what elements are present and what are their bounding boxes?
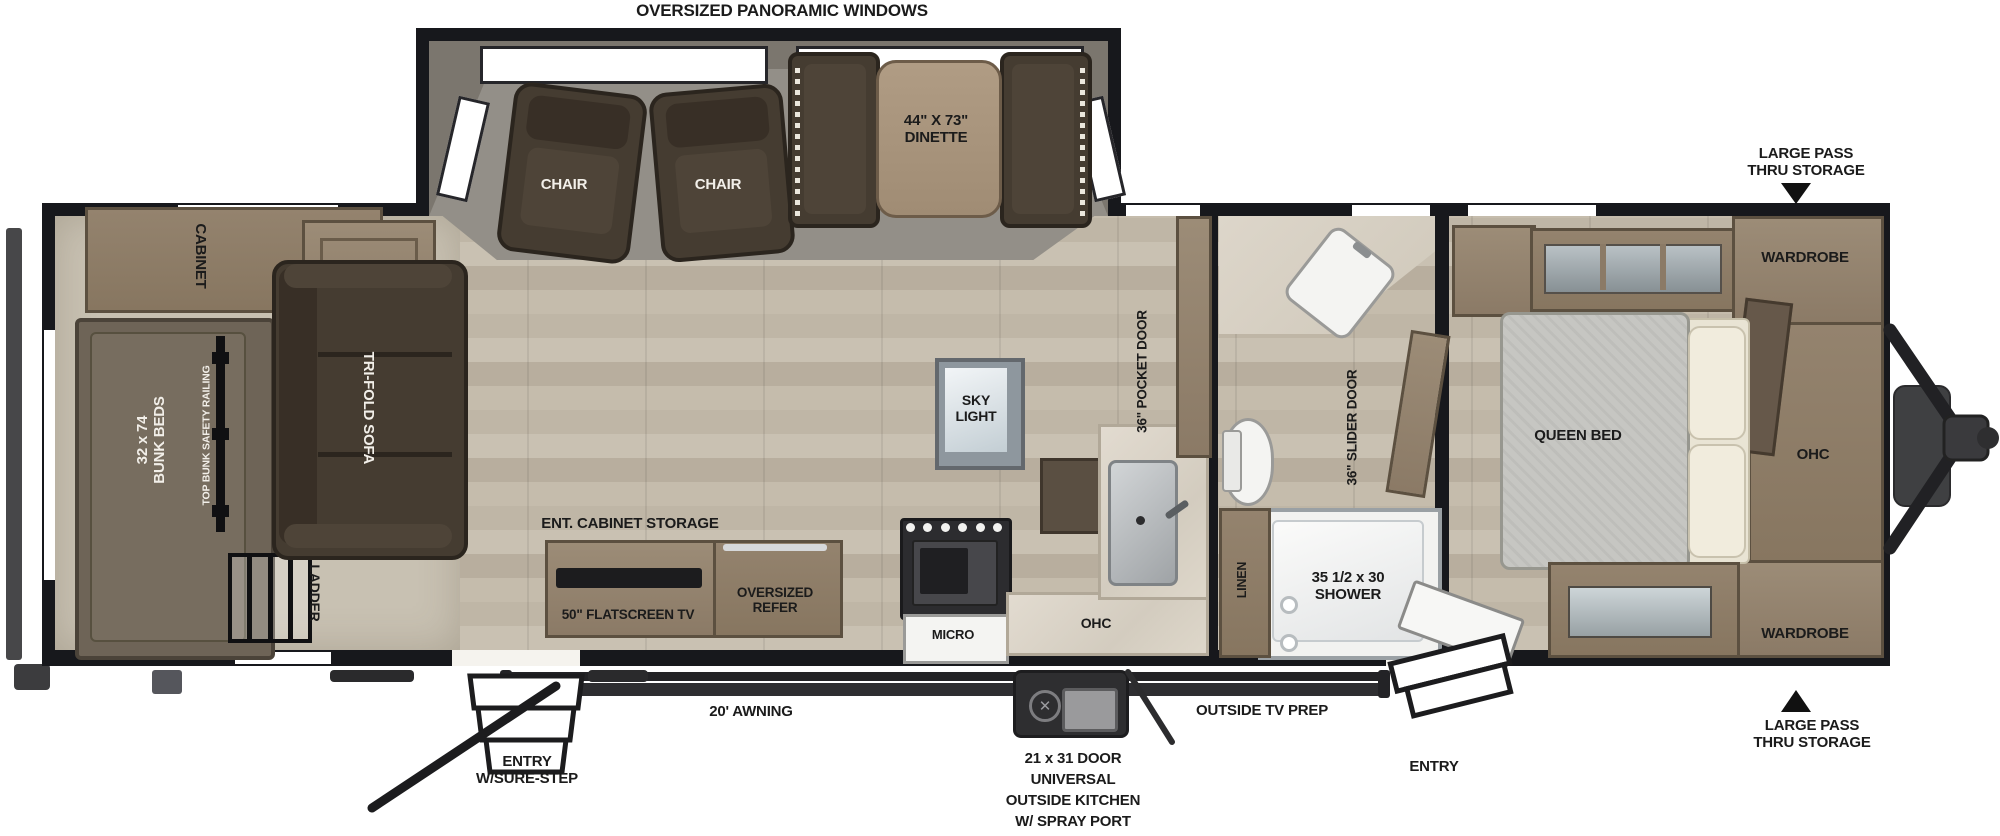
entry-rear-2: W/SURE-STEP [476,771,578,788]
bunk-beds-label: 32 x 74 BUNK BEDS [131,345,173,535]
chair-right-label: CHAIR [686,176,750,194]
awning-end-cap [500,670,512,698]
chair-back [665,96,770,149]
bunk-size-text: 32 x 74 [135,416,152,465]
bench-piping [1080,62,1085,216]
dinette-name-text: DINETTE [905,130,968,147]
bedroom-cabinet [1452,225,1536,317]
shower-size-text: 35 1/2 x 30 [1312,570,1385,587]
panoramic-windows-label: OVERSIZED PANORAMIC WINDOWS [600,2,964,20]
flatscreen-tv [556,568,702,588]
sofa-seam [318,352,452,357]
skylight-text-2: LIGHT [956,409,997,425]
ent-cabinet-label: ENT. CABINET STORAGE [520,516,740,532]
pass-thru-bottom-1: LARGE PASS [1765,718,1859,735]
cabinet-mullion [1600,244,1606,290]
refer-text-1: OVERSIZED [737,585,813,600]
slider-door-label: 36" SLIDER DOOR [1344,348,1361,508]
sink-drain [1136,516,1145,525]
entry-front-label: ENTRY [1374,758,1494,776]
pillow [1688,326,1746,440]
outside-tv-label: OUTSIDE TV PREP [1152,703,1372,719]
wardrobe-bottom [1732,560,1884,658]
cabinet-label: CABINET [190,206,210,306]
shower-label: 35 1/2 x 30 SHOWER [1278,566,1418,608]
arrow-up-icon [1781,690,1811,712]
bed-foot-window [1568,586,1712,638]
window-top-kitchen [1126,205,1200,216]
skylight-label: SKY LIGHT [935,378,1017,440]
pass-thru-top-label: LARGE PASS THRU STORAGE [1716,144,1896,182]
arrow-down-icon [1781,183,1811,204]
chair-back [525,94,632,150]
bedroom-cabinet-glass [1544,244,1722,294]
entry-rear-label: ENTRY W/SURE-STEP [427,752,627,790]
dinette-label: 44" X 73" DINETTE [876,110,996,150]
awning-roll [505,683,1385,696]
kitchen-ohc-label: OHC [1046,616,1146,632]
bench-cushion [804,64,866,214]
outside-kitchen-2: UNIVERSAL [1031,769,1116,790]
outside-kitchen-panel [1062,688,1118,732]
pillow [1688,444,1746,558]
rail-bracket [212,352,229,364]
bench-piping [795,62,800,216]
pass-thru-top-1: LARGE PASS [1759,146,1853,163]
shower-drain [1280,634,1298,652]
sofa-label: TRI-FOLD SOFA [358,298,378,518]
rear-bumper-cap [14,664,50,690]
linen-label: LINEN [1234,515,1250,645]
wardrobe-bottom-label: WARDROBE [1732,626,1878,642]
tv-cabinet [545,540,719,638]
shower-name-text: SHOWER [1315,587,1381,604]
utility-box [152,670,182,694]
cabinet-mullion [1660,244,1666,290]
entry-opening-rear [452,650,580,666]
outside-kitchen-1: 21 x 31 DOOR [1025,748,1122,769]
bunk-name-text: BUNK BEDS [152,396,169,483]
rail-bracket [212,428,229,440]
rail-bracket [212,505,229,517]
dinette-bench-left [788,52,880,228]
pass-thru-top-2: THRU STORAGE [1747,163,1864,180]
cooktop-grate [920,548,968,594]
rv-floorplan: CABINET 32 x 74 BUNK BEDS TOP BUNK SAFET… [0,0,2000,836]
top-bunk-railing-label: TOP BUNK SAFETY RAILING [200,336,215,536]
ladder-label: LADDER [305,550,323,636]
sofa-seam [318,452,452,457]
refrigerator-handle [723,544,827,551]
awning-end-cap [1378,670,1390,698]
window-top-bedroom [1468,205,1596,216]
awning-arm [588,670,648,682]
micro-label: MICRO [903,627,1003,643]
dinette-size-text: 44" X 73" [904,113,968,130]
chair-left-label: CHAIR [532,176,596,194]
wardrobe-top-label: WARDROBE [1732,250,1878,266]
propane-tank-cover [1893,385,1951,507]
refer-label: OVERSIZED REFER [713,583,837,617]
refer-text-2: REFER [753,600,798,615]
window-top-bath [1352,205,1430,216]
panoramic-window-left [480,46,768,84]
bedroom-ohc-label: OHC [1763,447,1863,463]
chair-left [495,80,649,265]
queen-bed-label: QUEEN BED [1508,428,1648,444]
sofa-arm [284,264,452,288]
pass-thru-bottom-2: THRU STORAGE [1753,735,1870,752]
awning-arm [330,670,414,682]
pocket-door-panel [1176,216,1212,458]
stove-knobs [906,523,1002,533]
bench-cushion [1012,64,1074,214]
overhead-cabinet-corner [1040,458,1104,534]
entry-rear-1: ENTRY [502,754,551,771]
outside-kitchen-4: W/ SPRAY PORT [1015,811,1131,832]
dinette-bench-right [1000,52,1092,228]
ladder-graphic [228,553,312,643]
pass-thru-bottom-label: LARGE PASS THRU STORAGE [1712,716,1912,754]
outside-kitchen-3: OUTSIDE KITCHEN [1006,790,1141,811]
toilet-tank [1222,430,1242,492]
awning-label: 20' AWNING [671,704,831,720]
sofa-arm [284,524,452,548]
sofa-backrest [279,268,317,544]
skylight-text-1: SKY [962,393,990,409]
rear-bumper [6,228,22,660]
window-rear-wall [44,330,55,580]
pocket-door-label: 36" POCKET DOOR [1134,292,1151,452]
outside-kitchen-label: 21 x 31 DOOR UNIVERSAL OUTSIDE KITCHEN W… [953,746,1193,834]
tv-label: 50" FLATSCREEN TV [533,607,723,623]
chair-right [648,82,796,263]
spray-port-icon: ✕ [1029,690,1061,722]
